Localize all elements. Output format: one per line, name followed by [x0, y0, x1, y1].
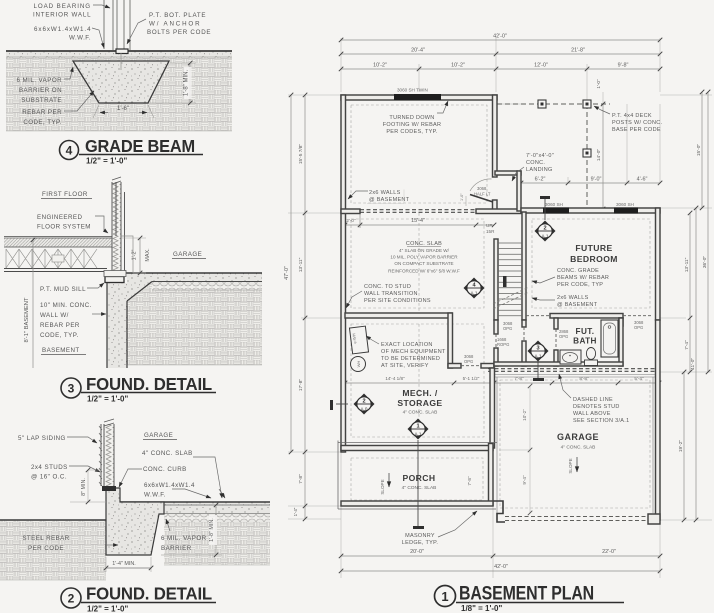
svg-text:2x4 STUDS: 2x4 STUDS [31, 464, 68, 471]
svg-text:POSTS W/ CONC.: POSTS W/ CONC. [612, 120, 663, 126]
svg-text:13'-11": 13'-11" [298, 257, 304, 272]
svg-text:3060 SH TWIN: 3060 SH TWIN [397, 88, 428, 93]
svg-text:12'-0": 12'-0" [534, 63, 548, 69]
svg-text:REBAR PER: REBAR PER [40, 322, 80, 329]
svg-text:13'-11": 13'-11" [684, 257, 690, 272]
svg-text:9'-0": 9'-0" [591, 177, 602, 183]
svg-text:P.T. 4x4 DECK: P.T. 4x4 DECK [612, 113, 652, 119]
svg-text:OF MECH EQUIPMENT: OF MECH EQUIPMENT [381, 349, 446, 355]
svg-text:P.T. MUD SILL: P.T. MUD SILL [40, 286, 86, 293]
svg-text:10'-2": 10'-2" [373, 63, 387, 69]
svg-text:3060 SH: 3060 SH [545, 202, 563, 207]
svg-text:14'-0": 14'-0" [596, 149, 602, 162]
svg-text:10'-2": 10'-2" [451, 63, 465, 69]
svg-text:4" SLAB ON GRADE W/: 4" SLAB ON GRADE W/ [399, 248, 450, 253]
svg-text:22'-0": 22'-0" [602, 549, 616, 555]
svg-text:CONC. SLAB: CONC. SLAB [406, 241, 442, 247]
svg-text:BASEMENT: BASEMENT [42, 347, 80, 354]
svg-text:20'-4": 20'-4" [411, 48, 425, 54]
svg-text:A.1: A.1 [542, 233, 549, 238]
svg-text:GARAGE: GARAGE [144, 432, 173, 439]
svg-text:REBAR PER: REBAR PER [22, 109, 62, 116]
svg-text:4'-6": 4'-6" [637, 177, 648, 183]
svg-text:REINFORCED W/ 6"x6" 5/8 W.W.F: REINFORCED W/ 6"x6" 5/8 W.W.F [388, 269, 460, 274]
svg-text:1'-0": 1'-0" [460, 193, 464, 201]
svg-text:3068: 3068 [477, 186, 487, 191]
svg-text:1'-4" MIN.: 1'-4" MIN. [112, 561, 136, 567]
svg-text:GARAGE: GARAGE [557, 432, 599, 442]
svg-text:MASONRY: MASONRY [405, 533, 435, 539]
svg-text:10" MIN. CONC.: 10" MIN. CONC. [40, 302, 92, 309]
svg-text:GRADE BEAM: GRADE BEAM [85, 136, 195, 156]
svg-text:STORAGE: STORAGE [397, 398, 442, 408]
svg-text:CONC. CURB: CONC. CURB [143, 466, 187, 473]
svg-text:PORCH: PORCH [402, 473, 435, 483]
svg-text:15R: 15R [486, 229, 495, 234]
svg-text:1'-6": 1'-6" [117, 106, 129, 112]
svg-text:DENOTES STUD: DENOTES STUD [573, 404, 620, 410]
svg-text:FUT.: FUT. [576, 327, 595, 336]
svg-text:A.1: A.1 [415, 431, 422, 436]
svg-text:A.1: A.1 [471, 290, 478, 295]
svg-text:A.0: A.0 [361, 406, 368, 411]
svg-text:1'-8" MIN.: 1'-8" MIN. [209, 518, 215, 542]
svg-text:BATH: BATH [573, 337, 597, 346]
svg-text:15'-5 7/8": 15'-5 7/8" [298, 144, 304, 165]
svg-text:GARAGE: GARAGE [173, 251, 202, 258]
svg-text:42'-0": 42'-0" [493, 34, 507, 40]
svg-text:BOLTS PER CODE: BOLTS PER CODE [147, 29, 211, 36]
svg-text:1'-0": 1'-0" [596, 79, 601, 89]
svg-text:CONC. TO STUD: CONC. TO STUD [364, 284, 411, 290]
svg-text:1/2" = 1'-0": 1/2" = 1'-0" [86, 157, 127, 166]
svg-text:P.T. BOT. PLATE: P.T. BOT. PLATE [149, 12, 206, 19]
svg-text:15'-0": 15'-0" [696, 144, 702, 157]
svg-text:2x6 WALLS: 2x6 WALLS [557, 295, 589, 301]
svg-text:2: 2 [362, 398, 365, 404]
svg-text:2'-0": 2'-0" [346, 218, 356, 223]
svg-text:TO BE DETERMINED: TO BE DETERMINED [381, 356, 440, 362]
svg-text:@ BASEMENT: @ BASEMENT [557, 302, 598, 308]
svg-text:FOUND. DETAIL: FOUND. DETAIL [86, 584, 212, 604]
svg-text:3: 3 [68, 382, 75, 396]
svg-text:7'-4": 7'-4" [684, 340, 690, 350]
svg-text:@ BASEMENT: @ BASEMENT [369, 197, 410, 203]
svg-text:CODE, TYP.: CODE, TYP. [40, 332, 79, 339]
svg-text:4" CONC. SLAB: 4" CONC. SLAB [142, 450, 193, 457]
svg-text:SLOPE: SLOPE [380, 479, 385, 494]
svg-text:CONC. GRADE: CONC. GRADE [557, 268, 599, 274]
svg-text:ROPG: ROPG [497, 342, 509, 347]
svg-text:1'-4": 1'-4" [293, 507, 298, 516]
svg-text:1/8" = 1'-0": 1/8" = 1'-0" [461, 604, 502, 613]
svg-text:7'-8": 7'-8" [467, 476, 472, 486]
svg-text:6 MIL. VAPOR: 6 MIL. VAPOR [161, 535, 207, 542]
svg-text:41'-0": 41'-0" [690, 358, 696, 371]
svg-text:FOOTING W/ REBAR: FOOTING W/ REBAR [383, 122, 442, 128]
svg-text:1: 1 [441, 589, 448, 604]
svg-text:PER CODES, TYP.: PER CODES, TYP. [386, 129, 438, 135]
svg-text:DASHED LINE: DASHED LINE [573, 397, 613, 403]
svg-text:BARRIER ON: BARRIER ON [19, 87, 62, 94]
svg-text:MECH. /: MECH. / [402, 388, 437, 398]
svg-text:10'-2": 10'-2" [522, 409, 527, 421]
svg-text:4" CONC. SLAB: 4" CONC. SLAB [402, 485, 437, 491]
svg-text:AT SITE, VERIFY: AT SITE, VERIFY [381, 363, 429, 369]
svg-text:MAX.: MAX. [145, 248, 151, 261]
svg-text:BEDROOM: BEDROOM [570, 254, 618, 264]
svg-text:17'-8": 17'-8" [298, 379, 304, 392]
svg-text:ENGINEERED: ENGINEERED [37, 214, 82, 221]
svg-text:1/2" = 1'-0": 1/2" = 1'-0" [87, 395, 128, 404]
svg-text:2: 2 [68, 592, 75, 606]
svg-text:CODE, TYP.: CODE, TYP. [23, 119, 62, 126]
svg-text:OPG: OPG [559, 334, 568, 339]
svg-text:20'-0": 20'-0" [410, 549, 424, 555]
svg-text:36'-0": 36'-0" [702, 256, 708, 269]
svg-text:14'-4 1/8": 14'-4 1/8" [385, 376, 405, 381]
svg-text:ON COMPACT SUBSTRATE: ON COMPACT SUBSTRATE [394, 261, 453, 266]
svg-text:7'-8": 7'-8" [298, 474, 304, 484]
svg-text:BEAMS W/ REBAR: BEAMS W/ REBAR [557, 275, 609, 281]
svg-text:FUTURE: FUTURE [575, 243, 612, 253]
svg-text:1'-2": 1'-2" [132, 250, 138, 261]
svg-text:OPG: OPG [464, 359, 473, 364]
svg-text:7'-0"x4'-0": 7'-0"x4'-0" [526, 153, 554, 159]
svg-text:FIRST FLOOR: FIRST FLOOR [42, 191, 88, 198]
svg-text:5'-1 1/2": 5'-1 1/2" [463, 376, 480, 381]
svg-text:8'-1" BASEMENT: 8'-1" BASEMENT [24, 297, 30, 343]
svg-text:47'-0": 47'-0" [284, 266, 290, 280]
svg-text:W.W.F.: W.W.F. [144, 492, 166, 499]
svg-text:PER CODE: PER CODE [28, 545, 64, 552]
svg-text:HALF LT: HALF LT [474, 192, 491, 197]
svg-text:W.W.F.: W.W.F. [69, 35, 91, 42]
svg-text:9'-8": 9'-8" [618, 63, 629, 69]
svg-text:1: 1 [416, 423, 419, 429]
svg-text:21'-8": 21'-8" [571, 48, 585, 54]
svg-text:19'-2": 19'-2" [678, 440, 684, 453]
svg-text:A.1: A.1 [535, 353, 542, 358]
svg-text:6x6xW1.4xW1.4: 6x6xW1.4xW1.4 [34, 26, 91, 33]
svg-text:9'-4": 9'-4" [522, 475, 527, 485]
svg-text:FLOOR SYSTEM: FLOOR SYSTEM [37, 224, 91, 231]
svg-text:4: 4 [66, 144, 73, 158]
svg-text:LANDING: LANDING [526, 167, 553, 173]
svg-text:1'-8" MIN.: 1'-8" MIN. [184, 70, 190, 97]
svg-text:TURNED DOWN: TURNED DOWN [389, 115, 434, 121]
svg-text:UP: UP [486, 223, 492, 228]
svg-text:PER CODE, TYP: PER CODE, TYP [557, 282, 603, 288]
svg-text:INTERIOR WALL: INTERIOR WALL [33, 12, 91, 19]
svg-text:4" CONC. SLAB: 4" CONC. SLAB [403, 410, 438, 416]
svg-text:4" CONC. SLAB: 4" CONC. SLAB [561, 445, 596, 451]
svg-text:OPG: OPG [503, 326, 512, 331]
svg-text:BASEMENT PLAN: BASEMENT PLAN [459, 583, 594, 605]
svg-text:EXACT LOCATION: EXACT LOCATION [381, 342, 433, 348]
svg-text:10 MIL. POLY VAPOR BARRIER: 10 MIL. POLY VAPOR BARRIER [390, 255, 458, 260]
svg-text:1/2" = 1'-0": 1/2" = 1'-0" [87, 605, 128, 613]
svg-text:WALL TRANSITION: WALL TRANSITION [364, 291, 418, 297]
svg-text:15'-4": 15'-4" [411, 218, 425, 224]
svg-text:3: 3 [536, 345, 539, 351]
svg-text:3060 SH: 3060 SH [616, 202, 634, 207]
svg-text:STEEL REBAR: STEEL REBAR [22, 535, 69, 542]
svg-text:6 MIL. VAPOR: 6 MIL. VAPOR [16, 77, 62, 84]
svg-text:LEDGE, TYP.: LEDGE, TYP. [402, 540, 439, 546]
svg-text:6x6xW1.4xW1.4: 6x6xW1.4xW1.4 [144, 482, 195, 489]
svg-text:SLOPE: SLOPE [568, 458, 573, 473]
svg-text:WALL ABOVE: WALL ABOVE [573, 411, 611, 417]
svg-text:WALL W/: WALL W/ [40, 312, 69, 319]
svg-text:SEE SECTION 3/A.1: SEE SECTION 3/A.1 [573, 418, 629, 424]
svg-text:OPG: OPG [634, 325, 643, 330]
svg-text:CONC.: CONC. [526, 160, 545, 166]
svg-text:LOAD BEARING: LOAD BEARING [34, 3, 91, 10]
svg-text:8" MIN.: 8" MIN. [81, 478, 87, 496]
svg-text:42'-0": 42'-0" [494, 564, 508, 570]
svg-text:6'-2": 6'-2" [535, 177, 546, 183]
svg-text:2: 2 [543, 225, 546, 231]
svg-text:FOUND. DETAIL: FOUND. DETAIL [86, 374, 212, 394]
svg-text:5" LAP SIDING: 5" LAP SIDING [18, 435, 66, 442]
svg-text:BASE PER CODE: BASE PER CODE [612, 127, 661, 133]
svg-text:WH: WH [356, 361, 361, 368]
svg-text:2x6 WALLS: 2x6 WALLS [369, 190, 401, 196]
svg-text:SUBSTRATE: SUBSTRATE [21, 97, 62, 104]
svg-text:BARRIER: BARRIER [161, 545, 192, 552]
svg-text:@ 16" O.C.: @ 16" O.C. [31, 474, 67, 481]
svg-text:PER SITE CONDITIONS: PER SITE CONDITIONS [364, 298, 431, 304]
